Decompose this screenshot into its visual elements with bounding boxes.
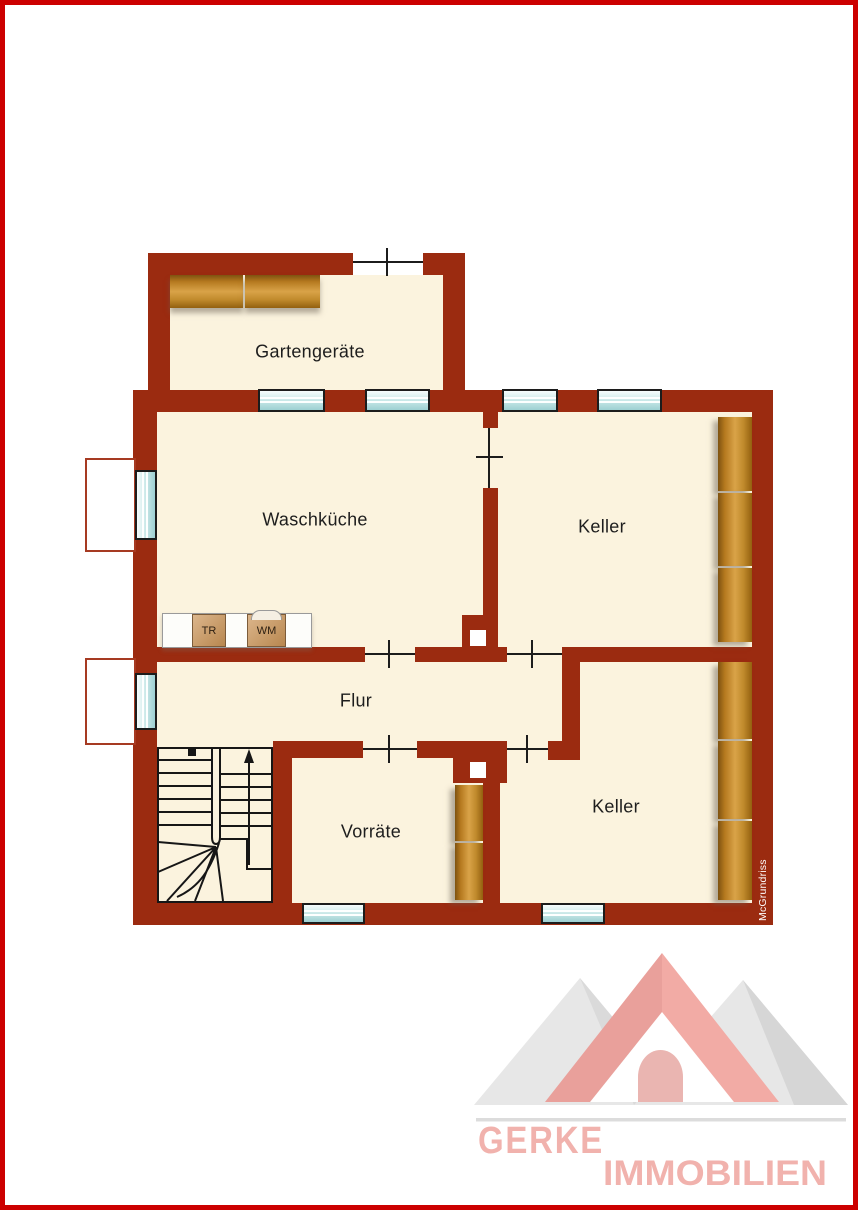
appliance-counter bbox=[162, 613, 312, 648]
wall-segment bbox=[148, 253, 353, 275]
window bbox=[258, 389, 325, 412]
wall-segment bbox=[133, 390, 773, 412]
logo-door-arch bbox=[638, 1050, 683, 1102]
wood-shelf bbox=[718, 493, 752, 566]
room-label-gartengeraete: Gartengeräte bbox=[255, 342, 365, 363]
wood-shelf bbox=[170, 275, 243, 308]
wall-segment bbox=[562, 647, 752, 662]
staircase-lines bbox=[158, 748, 272, 902]
wall-segment bbox=[443, 253, 465, 392]
window bbox=[597, 389, 662, 412]
wood-shelf bbox=[718, 568, 752, 642]
wall-segment bbox=[157, 647, 365, 662]
light-well bbox=[85, 458, 136, 552]
door-tick bbox=[476, 456, 503, 458]
door-tick bbox=[386, 248, 388, 276]
wood-shelf bbox=[718, 821, 752, 900]
door-tick bbox=[531, 640, 533, 668]
room-label-vorraete: Vorräte bbox=[341, 822, 401, 843]
door-line bbox=[353, 261, 423, 263]
logo-company-suffix: IMMOBILIEN bbox=[603, 1154, 827, 1193]
door-tick bbox=[526, 735, 528, 763]
door-tick bbox=[388, 735, 390, 763]
stair-direction-arrow bbox=[244, 749, 254, 763]
wall-segment bbox=[483, 412, 498, 428]
room-label-keller-lower: Keller bbox=[592, 797, 640, 818]
dryer-label: TR bbox=[202, 625, 217, 637]
wood-shelf bbox=[455, 843, 483, 900]
logo-roof-icon bbox=[474, 953, 848, 1105]
room-label-keller-upper: Keller bbox=[578, 517, 626, 538]
window bbox=[135, 673, 157, 730]
window bbox=[135, 470, 157, 540]
wood-shelf bbox=[455, 785, 483, 841]
room-label-waschkueche: Waschküche bbox=[262, 510, 367, 531]
window bbox=[302, 903, 365, 924]
mcgrundriss-watermark: McGrundriss bbox=[757, 859, 769, 921]
logo-company-name: GERKE bbox=[478, 1120, 604, 1162]
window bbox=[365, 389, 430, 412]
gerke-logo: GERKE IMMOBILIEN bbox=[466, 948, 854, 1208]
door-tick bbox=[388, 640, 390, 668]
door-line bbox=[507, 653, 562, 655]
wall-segment bbox=[752, 390, 773, 925]
door-line bbox=[488, 428, 490, 488]
wall-segment bbox=[417, 741, 507, 758]
wood-shelf bbox=[718, 662, 752, 739]
chimney-flue bbox=[470, 762, 486, 778]
window bbox=[541, 903, 605, 924]
room-label-flur: Flur bbox=[340, 691, 372, 712]
floor-plan-page: TR WM Gartengeräte Waschküche Keller Flu… bbox=[0, 0, 858, 1210]
washing-machine-label: WM bbox=[257, 625, 277, 637]
window bbox=[502, 389, 558, 412]
dryer-icon: TR bbox=[192, 614, 226, 647]
wall-segment bbox=[133, 903, 773, 925]
washing-machine-icon: WM bbox=[247, 614, 286, 647]
staircase bbox=[157, 747, 273, 903]
wood-shelf bbox=[718, 417, 752, 491]
door-line bbox=[363, 748, 417, 750]
door-line bbox=[365, 653, 415, 655]
wood-shelf bbox=[245, 275, 320, 308]
stair-entry-marker bbox=[188, 748, 196, 756]
light-well bbox=[85, 658, 136, 745]
chimney-flue bbox=[470, 630, 486, 646]
wall-segment bbox=[415, 647, 507, 662]
wall-segment bbox=[548, 741, 580, 760]
wood-shelf bbox=[718, 741, 752, 819]
wall-segment bbox=[273, 741, 292, 903]
